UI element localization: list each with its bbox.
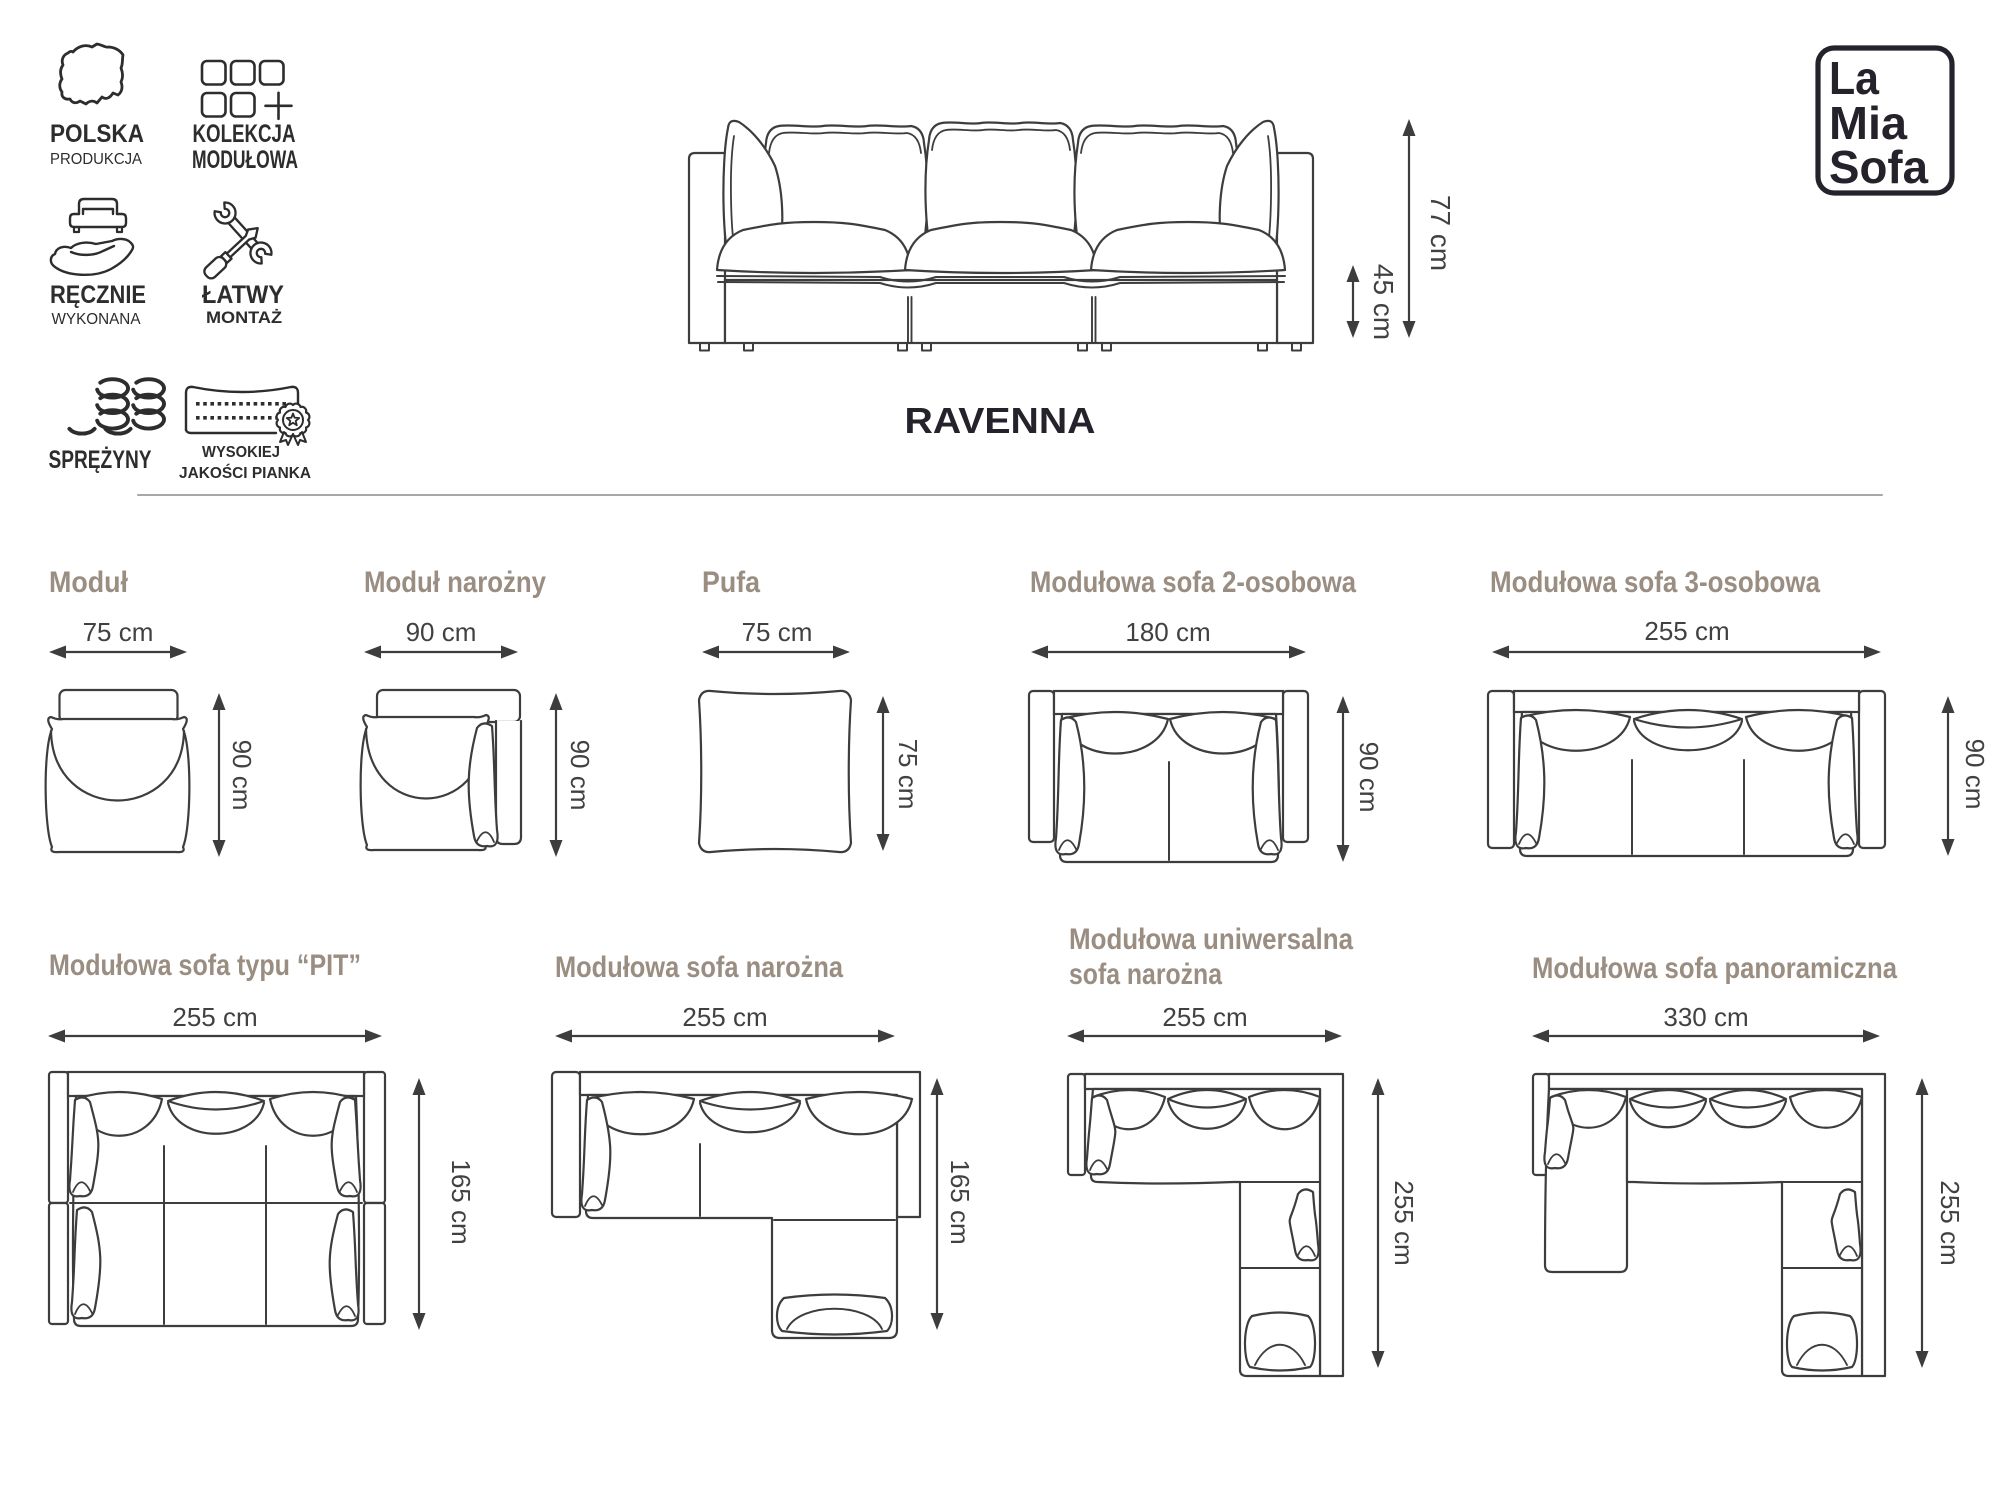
- svg-text:Modułowa uniwersalna: Modułowa uniwersalna: [1069, 923, 1353, 956]
- svg-text:Moduł narożny: Moduł narożny: [364, 566, 546, 599]
- svg-text:sofa narożna: sofa narożna: [1069, 958, 1222, 991]
- svg-text:75 cm: 75 cm: [742, 617, 813, 647]
- svg-text:Modułowa sofa typu “PIT”: Modułowa sofa typu “PIT”: [49, 949, 361, 982]
- svg-text:90 cm: 90 cm: [227, 740, 257, 811]
- svg-text:KOLEKCJA: KOLEKCJA: [193, 120, 296, 148]
- svg-text:90 cm: 90 cm: [406, 617, 477, 647]
- svg-text:WYKONANA: WYKONANA: [52, 311, 141, 328]
- svg-text:Modułowa sofa 2-osobowa: Modułowa sofa 2-osobowa: [1030, 566, 1356, 599]
- svg-text:90 cm: 90 cm: [1354, 742, 1384, 813]
- svg-text:ŁATWY: ŁATWY: [202, 281, 284, 309]
- svg-text:Modułowa sofa panoramiczna: Modułowa sofa panoramiczna: [1532, 952, 1897, 985]
- svg-text:255 cm: 255 cm: [1644, 616, 1729, 646]
- svg-text:Modułowa sofa narożna: Modułowa sofa narożna: [555, 951, 843, 984]
- svg-text:PRODUKCJA: PRODUKCJA: [50, 151, 142, 168]
- svg-text:MONTAŻ: MONTAŻ: [206, 308, 282, 327]
- svg-text:255 cm: 255 cm: [1389, 1180, 1419, 1265]
- svg-text:RĘCZNIE: RĘCZNIE: [50, 281, 146, 309]
- svg-text:POLSKA: POLSKA: [50, 120, 144, 148]
- svg-text:165 cm: 165 cm: [945, 1159, 975, 1244]
- svg-text:Moduł: Moduł: [49, 566, 129, 599]
- svg-text:165 cm: 165 cm: [446, 1159, 476, 1244]
- svg-text:77 cm: 77 cm: [1425, 195, 1456, 271]
- svg-text:90 cm: 90 cm: [1960, 739, 1990, 810]
- svg-text:255 cm: 255 cm: [1162, 1002, 1247, 1032]
- svg-text:Pufa: Pufa: [702, 566, 760, 599]
- svg-text:90 cm: 90 cm: [565, 740, 595, 811]
- svg-text:75 cm: 75 cm: [893, 739, 923, 810]
- svg-text:Sofa: Sofa: [1829, 141, 1928, 193]
- svg-text:330 cm: 330 cm: [1663, 1002, 1748, 1032]
- svg-text:RAVENNA: RAVENNA: [905, 400, 1096, 441]
- svg-text:MODUŁOWA: MODUŁOWA: [192, 146, 298, 174]
- svg-text:75 cm: 75 cm: [83, 617, 154, 647]
- svg-text:255 cm: 255 cm: [1935, 1180, 1965, 1265]
- svg-text:180 cm: 180 cm: [1125, 617, 1210, 647]
- svg-text:255 cm: 255 cm: [172, 1002, 257, 1032]
- svg-text:255 cm: 255 cm: [682, 1002, 767, 1032]
- svg-text:SPRĘŻYNY: SPRĘŻYNY: [49, 446, 152, 474]
- svg-text:WYSOKIEJ: WYSOKIEJ: [202, 444, 280, 461]
- svg-text:Modułowa sofa 3-osobowa: Modułowa sofa 3-osobowa: [1490, 566, 1820, 599]
- svg-text:45 cm: 45 cm: [1368, 264, 1399, 340]
- svg-text:JAKOŚCI PIANKA: JAKOŚCI PIANKA: [179, 463, 311, 482]
